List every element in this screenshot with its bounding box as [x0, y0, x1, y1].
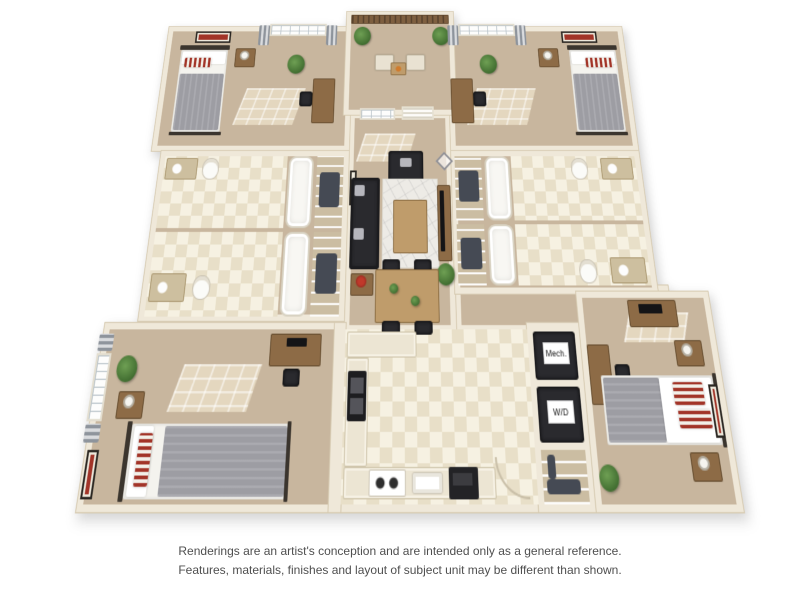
kitchen-sink [412, 472, 444, 494]
bed-footboard [169, 132, 222, 135]
range [368, 469, 405, 496]
bathtub [487, 224, 517, 285]
sunlight-patch [166, 364, 262, 412]
armchair-pillow [400, 158, 412, 167]
striped-pillow [672, 382, 705, 405]
kitchen-counter [347, 332, 417, 358]
disclaimer-line-1: Renderings are an artist's conception an… [0, 542, 800, 561]
striped-pillow [678, 410, 713, 429]
bathtub [285, 156, 314, 228]
vanity-sink [164, 158, 198, 180]
monitor [287, 338, 308, 347]
dining-chair [414, 321, 432, 335]
curtain [83, 424, 101, 443]
hall-window [360, 108, 396, 120]
coffee-table [393, 200, 428, 254]
wall-art [195, 31, 232, 43]
curtain [97, 334, 114, 351]
curtain [514, 25, 526, 45]
bed-duvet [573, 74, 624, 130]
hanging-clothes [458, 170, 479, 201]
striped-pillow [585, 58, 613, 68]
floorplan-canvas: Mech. W/D Renderings are an artist's con… [0, 0, 800, 600]
disclaimer: Renderings are an artist's conception an… [0, 542, 800, 580]
sofa-pillow [353, 228, 364, 240]
window [458, 24, 515, 36]
curtain [326, 25, 338, 45]
patio-table [391, 62, 407, 75]
monitor [638, 304, 663, 313]
bathtub [484, 156, 513, 220]
bed-footboard [576, 132, 629, 135]
bed-duvet [157, 426, 287, 497]
vanity-sink [600, 158, 634, 180]
floor-plan: Mech. W/D [51, 10, 749, 520]
desk-chair [299, 91, 313, 106]
louvered-door [402, 106, 434, 119]
wd-label: W/D [547, 400, 575, 423]
curtain [447, 25, 458, 45]
vanity-sink [148, 273, 187, 302]
hanging-clothes [315, 253, 338, 293]
patio-chair-right [406, 55, 425, 71]
shoe-rack [547, 479, 582, 494]
table-plant [411, 296, 420, 306]
mech-label: Mech. [542, 342, 569, 364]
striped-pillow [184, 58, 212, 68]
wall-art [561, 31, 598, 43]
desk-chair [282, 369, 300, 387]
bed-duvet [603, 378, 667, 443]
balcony-railing [351, 15, 449, 24]
potted-plant [437, 263, 455, 285]
armchair [388, 151, 423, 183]
hanging-clothes [460, 238, 482, 270]
wall-oven [347, 371, 367, 421]
desk [311, 78, 335, 123]
sofa-pillow [354, 185, 364, 196]
potted-plant [479, 55, 497, 74]
vanity-sink [610, 257, 648, 283]
table-lamp [543, 51, 553, 60]
table-plant [389, 283, 398, 293]
desk-chair [473, 91, 486, 106]
dining-table [375, 269, 440, 323]
disclaimer-line-2: Features, materials, finishes and layout… [0, 561, 800, 580]
bed-duvet [172, 74, 224, 130]
hanging-clothes [318, 172, 340, 207]
dishwasher [449, 467, 479, 499]
window [269, 24, 326, 36]
bathtub [279, 232, 310, 317]
desk [450, 78, 474, 123]
